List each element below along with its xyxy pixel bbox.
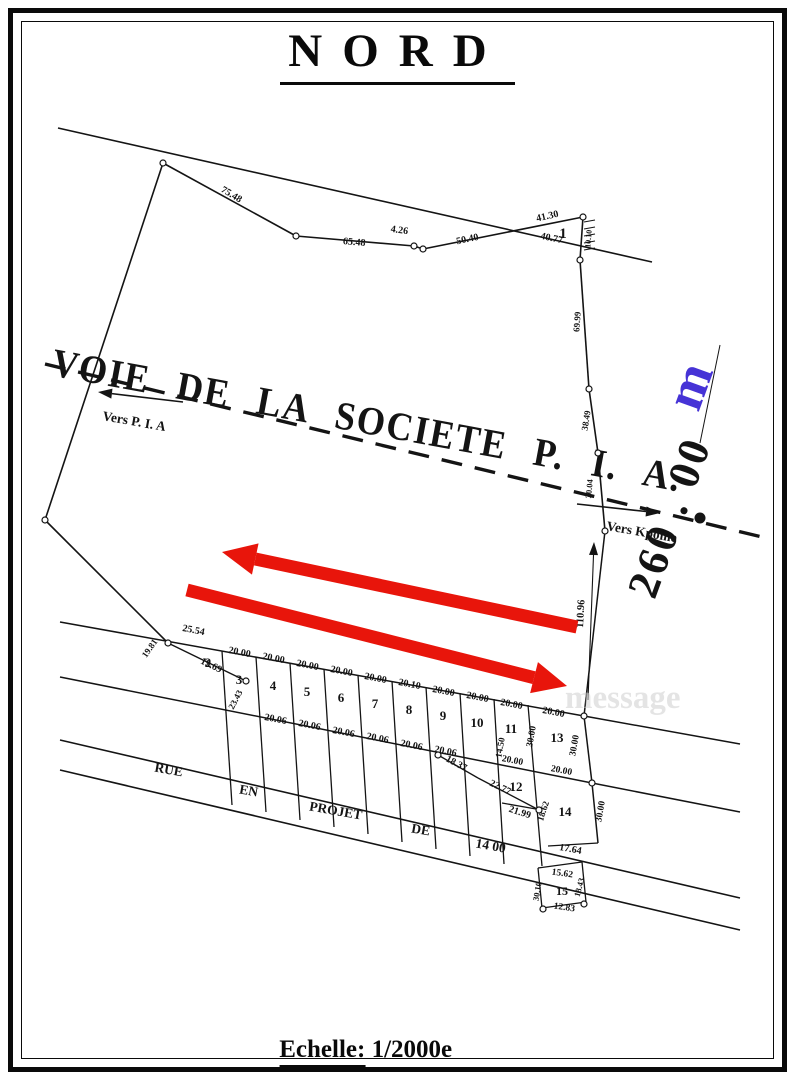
measurement-label: 30.00	[594, 800, 608, 823]
boundary-line	[45, 520, 168, 643]
vertex-circle	[595, 450, 601, 456]
measurement-label: 20.00	[295, 658, 319, 673]
street-name-word: RUE	[153, 760, 184, 780]
parcel-number: 12	[510, 779, 523, 794]
boundary-line	[584, 716, 740, 744]
dimension-260m-unit: m	[653, 354, 725, 417]
parcel-number: 8	[406, 702, 413, 717]
watermark: message	[565, 680, 680, 716]
vertex-circle	[581, 901, 587, 907]
boundary-line	[290, 663, 300, 820]
boundary-line	[538, 862, 582, 868]
measurement-label: 65.48	[343, 236, 366, 249]
parcel-number: 7	[372, 696, 379, 711]
parcel-number: 3	[236, 672, 243, 687]
vertex-circle	[435, 752, 441, 758]
measurement-label: 20.00	[465, 690, 489, 705]
red-arrow-head	[530, 662, 567, 693]
measurement-label: 20.06	[399, 738, 423, 753]
measurement-label: 20.00	[363, 671, 387, 686]
vertex-circle	[411, 243, 417, 249]
boundary-line	[584, 227, 595, 229]
scale-value: 1/2000e	[372, 1036, 453, 1063]
boundary-line	[584, 220, 595, 222]
vertex-circle	[165, 640, 171, 646]
measurement-label: 20.00	[541, 705, 565, 720]
measurement-label: 15.62	[551, 868, 574, 881]
parcel-number: 14	[559, 804, 573, 819]
vertex-circle	[243, 678, 249, 684]
measurement-label: 19.81	[140, 637, 160, 660]
measurement-label: 30.04	[583, 478, 595, 499]
vertex-circle	[580, 214, 586, 220]
vertex-circle	[540, 906, 546, 912]
measurement-label: 20.00	[329, 664, 353, 679]
vertex-circle	[42, 517, 48, 523]
parcel-number: 13	[551, 730, 565, 745]
parcel-number: 6	[338, 690, 345, 705]
measurement-label: 10.10	[583, 229, 594, 248]
measurement-label: 4.26	[390, 224, 409, 237]
measurement-label: 20.00	[227, 645, 251, 660]
parcel-number: 9	[440, 708, 447, 723]
measurement-label: 20.10	[397, 677, 421, 692]
measurement-label: 12.83	[553, 902, 576, 915]
direction-label-kpome-arrow	[577, 504, 646, 511]
parcel-number: 11	[505, 721, 517, 736]
measurement-label: 30.00	[568, 734, 582, 757]
measurement-label: 20.06	[297, 718, 321, 733]
measurement-label: 20.00	[431, 684, 455, 699]
scale-label: Echelle: 1/2000e	[279, 1036, 452, 1064]
boundary-line	[592, 783, 740, 812]
vertex-circle	[536, 807, 542, 813]
measurement-label: 38.49	[580, 409, 593, 431]
dim-110-line	[588, 555, 594, 700]
vertex-circle	[602, 528, 608, 534]
survey-plan-svg: VOIE DE LA SOCIETE P. I. A.Vers P. I. AV…	[0, 0, 795, 1080]
street-name-word: EN	[238, 782, 259, 800]
vertex-circle	[293, 233, 299, 239]
measurement-label: 75.48	[219, 184, 244, 205]
parcel-number: 10	[471, 715, 484, 730]
measurement-label: 20.06	[263, 712, 287, 727]
measurement-label: 18.37	[444, 754, 469, 774]
street-name-word: PROJET	[308, 799, 363, 823]
measurement-label: 20.06	[331, 725, 355, 740]
parcel-number: 4	[270, 678, 277, 693]
street-name-word: DE	[410, 821, 431, 839]
vertex-circle	[160, 160, 166, 166]
boundary-line	[584, 716, 592, 783]
survey-plan-page: NORD VOIE DE LA SOCIETE P. I. A.Vers P. …	[0, 0, 795, 1080]
red-arrow-head	[222, 543, 259, 574]
scale-word: Echelle:	[279, 1036, 365, 1067]
measurement-label: 20.00	[261, 651, 285, 666]
vertex-circle	[577, 257, 583, 263]
measurement-label: 25.54	[181, 623, 205, 638]
vertex-circle	[589, 780, 595, 786]
parcel-number: 2	[205, 655, 212, 670]
measurement-label: 18.43	[572, 877, 587, 898]
boundary-line	[460, 693, 470, 856]
boundary-line	[60, 770, 740, 930]
parcel-number: 1	[559, 226, 567, 242]
measurement-label: 20.06	[365, 731, 389, 746]
measurement-label: 23.43	[226, 688, 245, 711]
dim-110-arrowhead	[589, 542, 598, 555]
vertex-circle	[420, 246, 426, 252]
boundary-line	[580, 217, 583, 260]
measurement-label: 20.00	[499, 697, 523, 712]
measurement-label: 69.99	[571, 311, 582, 332]
parcel-number: 5	[304, 684, 311, 699]
measurement-label: 30.00	[525, 725, 539, 748]
measurement-label: 50.40	[455, 232, 479, 247]
parcel-number: 15	[556, 884, 568, 898]
measurement-label: 21.99	[507, 804, 532, 821]
direction-label-pia: Vers P. I. A	[101, 408, 167, 434]
vertex-circle	[586, 386, 592, 392]
